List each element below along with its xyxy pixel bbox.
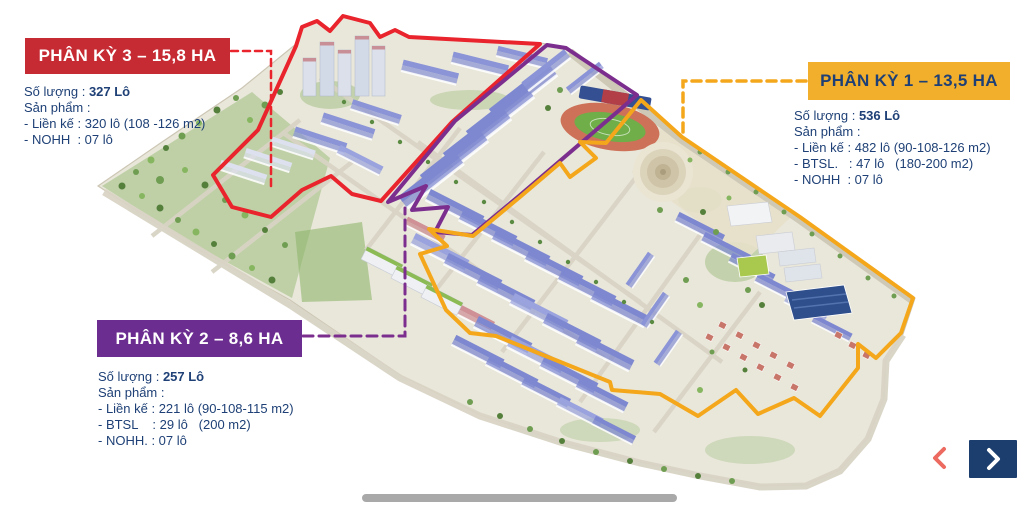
- phase1-product-line: - BTSL. : 47 lô (180-200 m2): [794, 156, 1010, 172]
- phase1-products-label: Sản phẩm :: [794, 124, 1010, 140]
- phase1-title: PHÂN KỲ 1 – 13,5 HA: [808, 62, 1010, 100]
- phase3-title: PHÂN KỲ 3 – 15,8 HA: [25, 38, 230, 74]
- phase3-product-line: - NOHH : 07 lô: [24, 132, 230, 148]
- phase3-quantity: Số lượng : 327 Lô: [24, 84, 230, 100]
- carousel-scrollbar[interactable]: [362, 494, 677, 502]
- phase3-product-line: - Liền kế : 320 lô (108 -126 m2): [24, 116, 230, 132]
- prev-slide-button[interactable]: [926, 444, 952, 472]
- phase1-product-line: - NOHH : 07 lô: [794, 172, 1010, 188]
- phase2-quantity: Số lượng : 257 Lô: [98, 369, 302, 385]
- phase1-quantity: Số lượng : 536 Lô: [794, 108, 1010, 124]
- connector-phase1: [683, 81, 806, 134]
- phase3-card: PHÂN KỲ 3 – 15,8 HA Số lượng : 327 Lô Sả…: [25, 38, 230, 148]
- chevron-right-icon: [984, 447, 1002, 471]
- phase2-title: PHÂN KỲ 2 – 8,6 HA: [97, 320, 302, 357]
- phase2-card: PHÂN KỲ 2 – 8,6 HA Số lượng : 257 Lô Sản…: [97, 320, 302, 449]
- phase1-product-line: - Liền kế : 482 lô (90-108-126 m2): [794, 140, 1010, 156]
- phase2-product-line: - Liền kế : 221 lô (90-108-115 m2): [98, 401, 302, 417]
- phase3-products-label: Sản phẩm :: [24, 100, 230, 116]
- phase2-products-label: Sản phẩm :: [98, 385, 302, 401]
- phase2-product-line: - NOHH. : 07 lô: [98, 433, 302, 449]
- next-slide-button[interactable]: [969, 440, 1017, 478]
- central-plaza: [633, 142, 693, 202]
- phase2-product-line: - BTSL : 29 lô (200 m2): [98, 417, 302, 433]
- phase1-card: PHÂN KỲ 1 – 13,5 HA Số lượng : 536 Lô Sả…: [808, 62, 1010, 188]
- chevron-left-icon: [930, 446, 948, 470]
